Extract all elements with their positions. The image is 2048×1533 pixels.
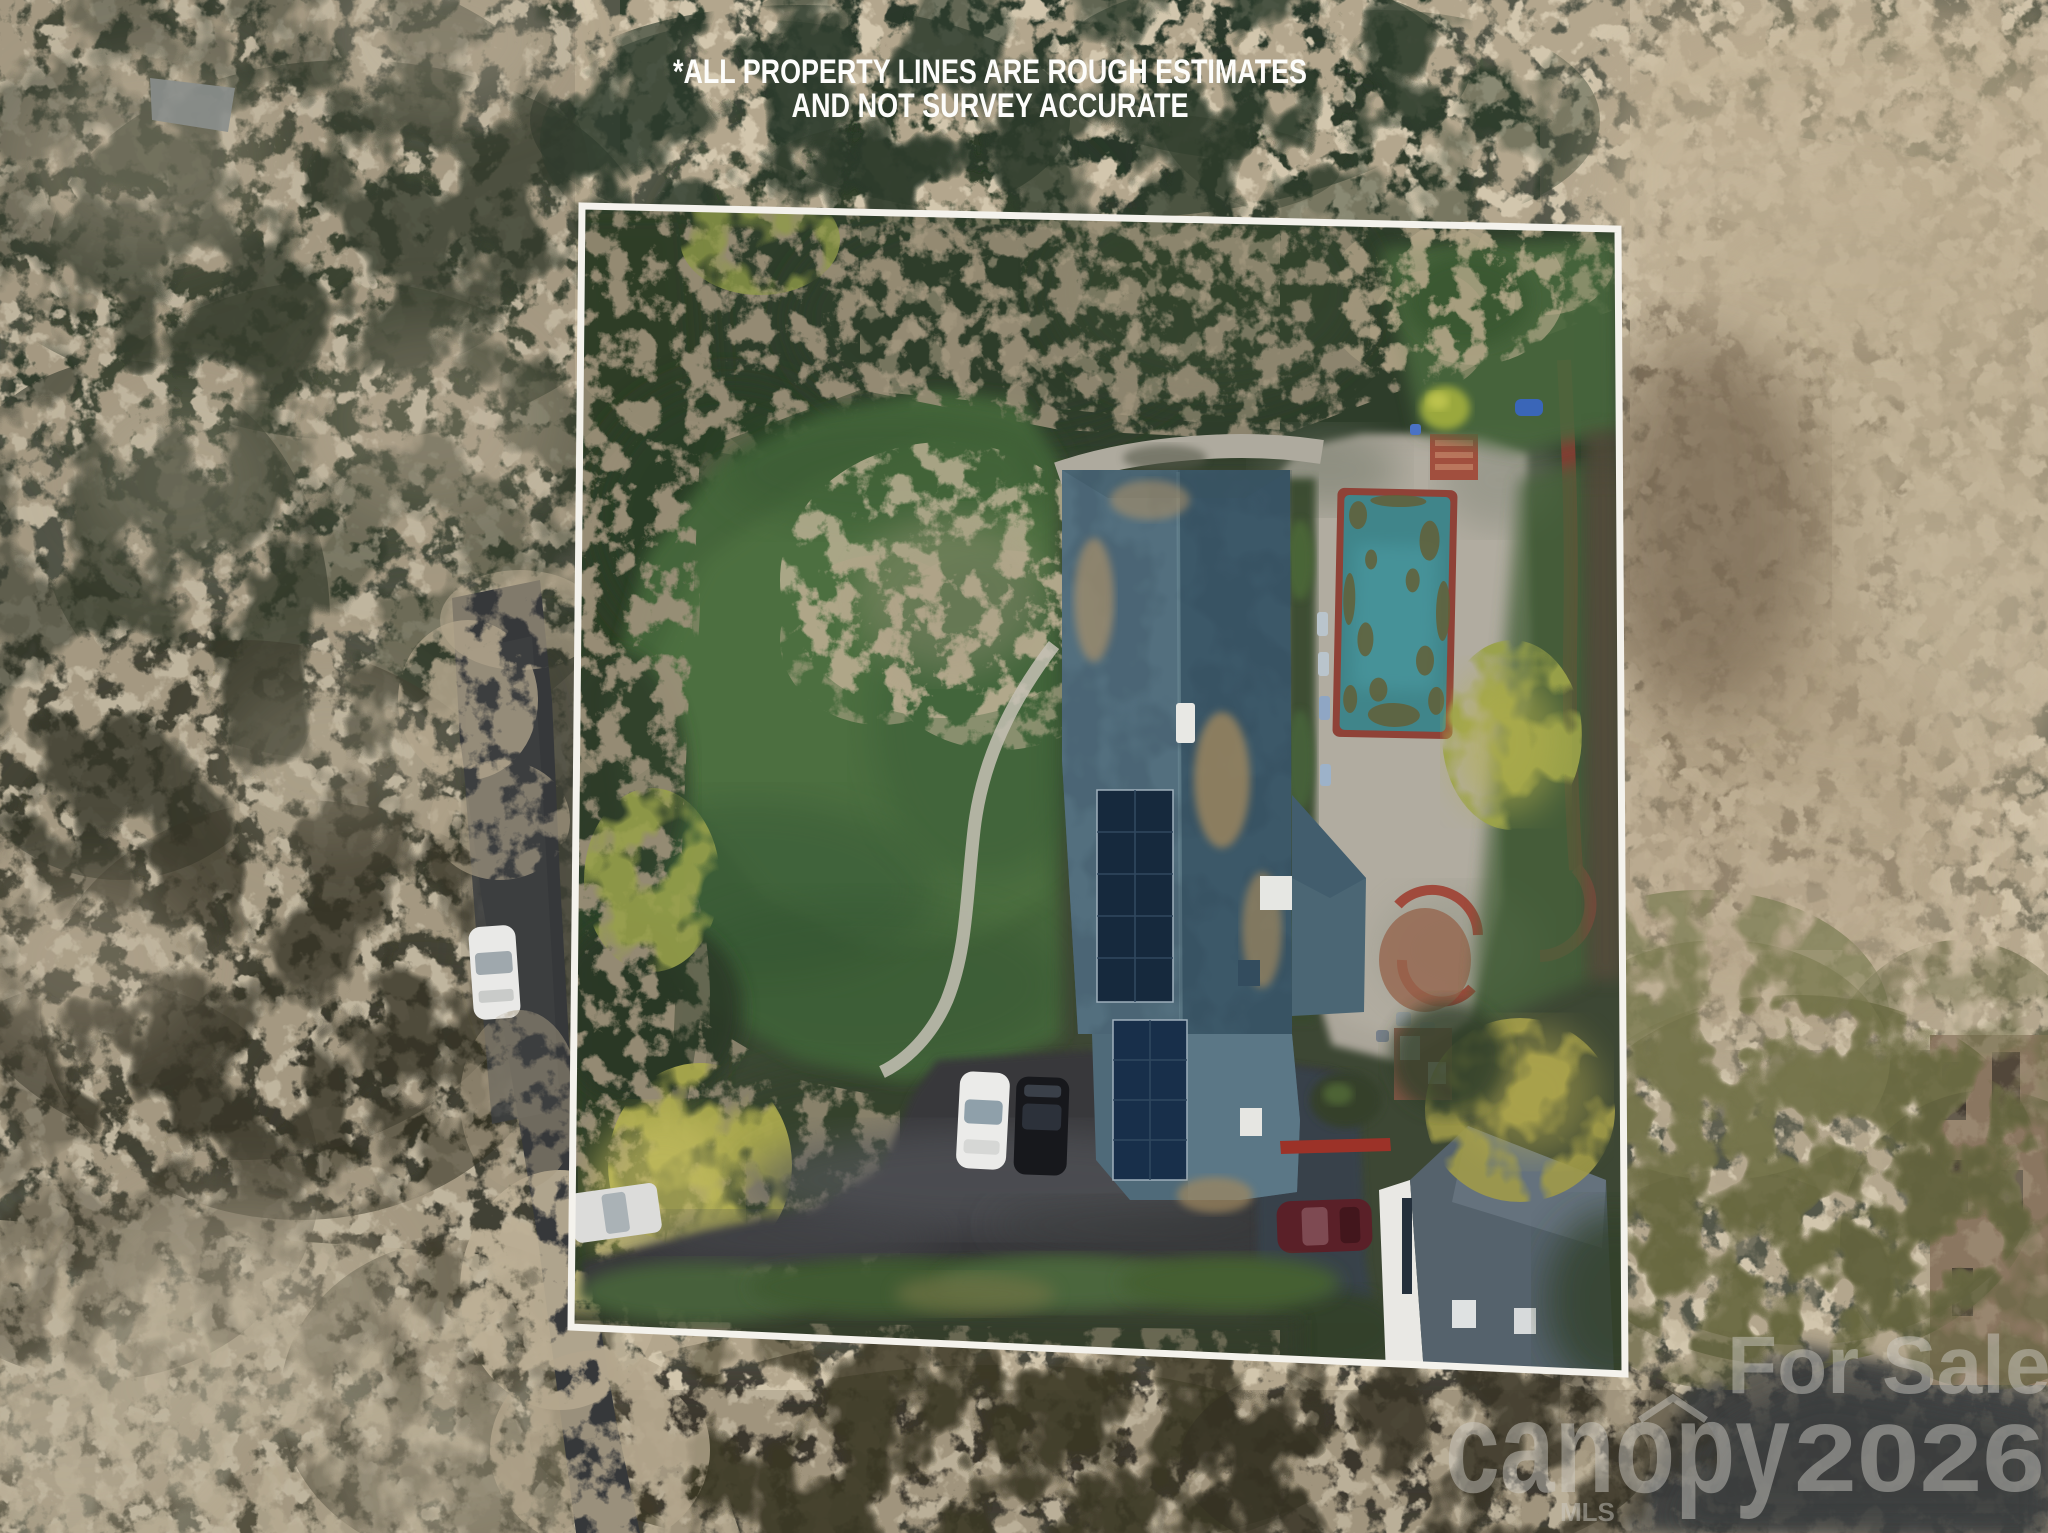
svg-text:2026: 2026 [1794,1405,2045,1512]
svg-text:AND NOT SURVEY ACCURATE: AND NOT SURVEY ACCURATE [792,87,1189,125]
svg-text:canopy: canopy [1445,1374,1790,1520]
svg-text:*ALL PROPERTY LINES ARE ROUGH: *ALL PROPERTY LINES ARE ROUGH ESTIMATES [673,53,1307,91]
svg-text:MLS: MLS [1560,1497,1615,1527]
